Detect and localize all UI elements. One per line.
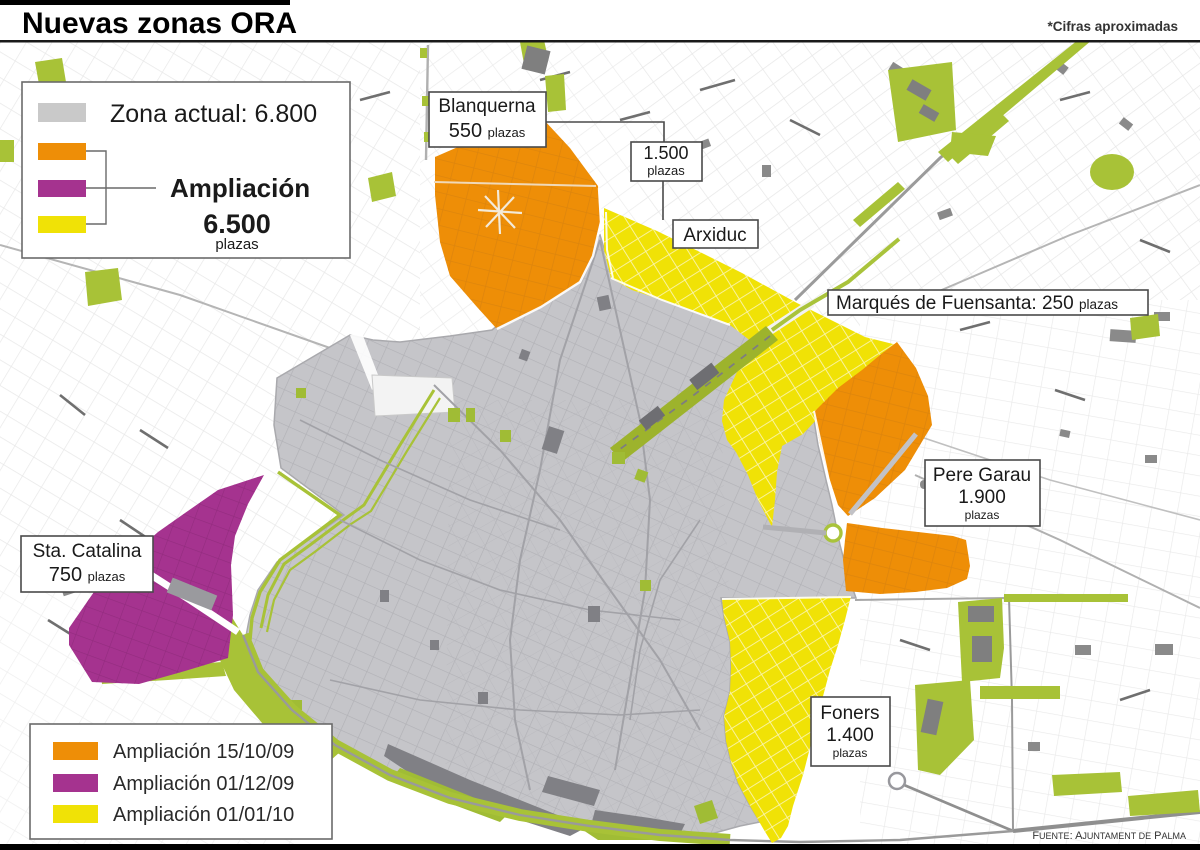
svg-text:6.500: 6.500 [203, 209, 271, 239]
svg-text:plazas: plazas [215, 236, 258, 253]
svg-text:Arxiduc: Arxiduc [683, 225, 746, 246]
svg-text:Nuevas zonas ORA: Nuevas zonas ORA [22, 7, 297, 40]
svg-text:1.400: 1.400 [826, 725, 874, 746]
svg-text:*Cifras aproximadas: *Cifras aproximadas [1047, 19, 1178, 34]
svg-text:Ampliación 01/12/09: Ampliación 01/12/09 [113, 773, 294, 795]
svg-text:Ampliación 01/01/10: Ampliación 01/01/10 [113, 804, 294, 826]
svg-text:plazas: plazas [647, 163, 685, 178]
svg-text:Foners: Foners [820, 703, 879, 724]
svg-text:1.900: 1.900 [958, 487, 1006, 508]
svg-text:plazas: plazas [965, 508, 1000, 522]
svg-text:Blanquerna: Blanquerna [438, 96, 536, 117]
svg-text:Marqués de Fuensanta: 250 plaz: Marqués de Fuensanta: 250 plazas [836, 293, 1118, 314]
svg-text:1.500: 1.500 [643, 143, 688, 163]
svg-text:Ampliación 15/10/09: Ampliación 15/10/09 [113, 741, 294, 763]
svg-text:Pere Garau: Pere Garau [933, 465, 1031, 486]
svg-text:plazas: plazas [833, 746, 868, 760]
svg-text:Zona actual: 6.800: Zona actual: 6.800 [110, 100, 317, 128]
svg-text:Sta. Catalina: Sta. Catalina [33, 541, 142, 562]
svg-text:FUENTE: AJUNTAMENT DE PALMA: FUENTE: AJUNTAMENT DE PALMA [1032, 830, 1186, 842]
svg-text:Ampliación: Ampliación [170, 173, 310, 203]
